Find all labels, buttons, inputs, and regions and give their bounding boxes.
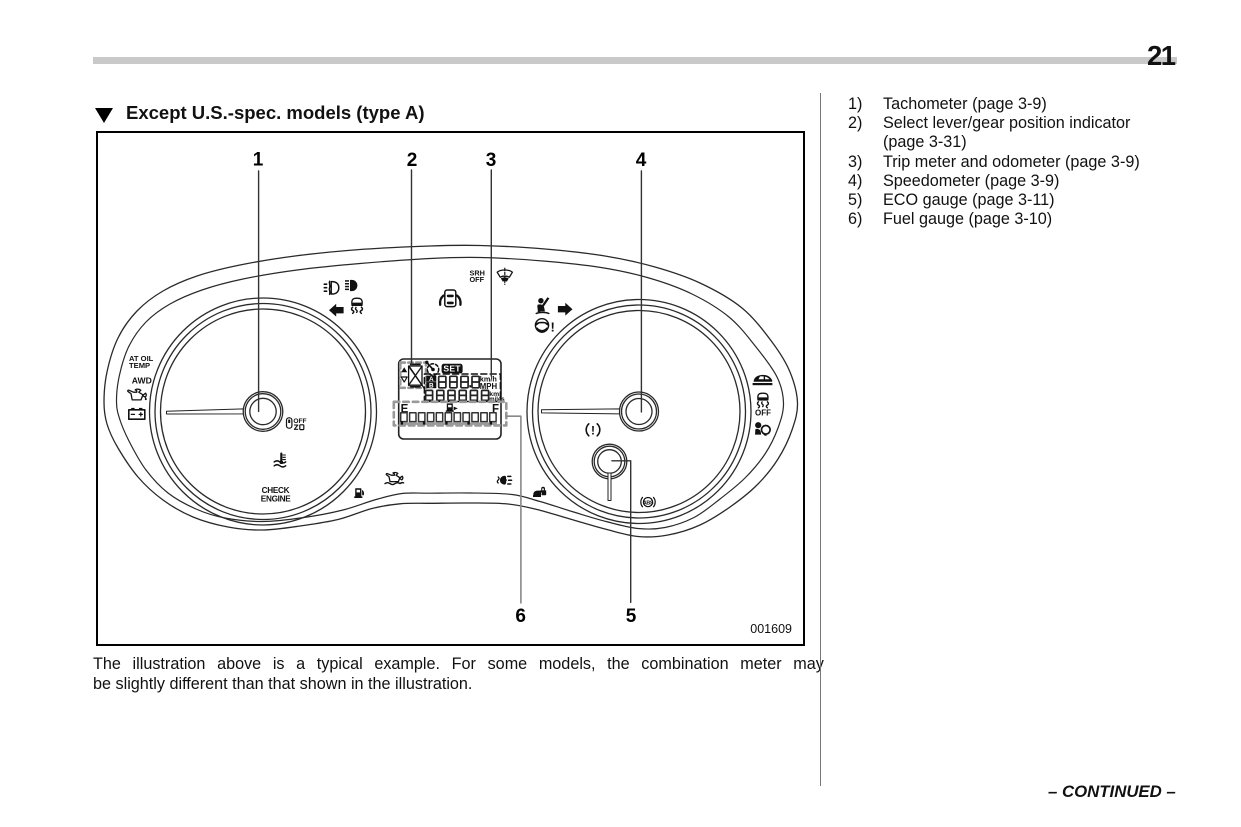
svg-text:4: 4 [636,150,647,171]
svg-text:OFF: OFF [755,408,771,417]
svg-text:ENGINE: ENGINE [261,495,291,504]
svg-text:3: 3 [486,150,497,171]
svg-text:!: ! [591,423,595,437]
svg-text:ABS: ABS [643,500,654,506]
svg-text:B: B [429,383,434,390]
svg-text:2: 2 [407,150,418,171]
svg-text:1: 1 [253,150,264,171]
svg-text:AWD: AWD [132,376,152,386]
svg-text:SET: SET [443,364,461,374]
svg-text:TEMP: TEMP [129,361,150,370]
svg-text:5: 5 [626,606,637,627]
svg-text:!: ! [551,320,555,335]
svg-text:OFF: OFF [470,275,485,284]
svg-text:OFF: OFF [293,418,306,425]
svg-text:6: 6 [515,606,526,627]
